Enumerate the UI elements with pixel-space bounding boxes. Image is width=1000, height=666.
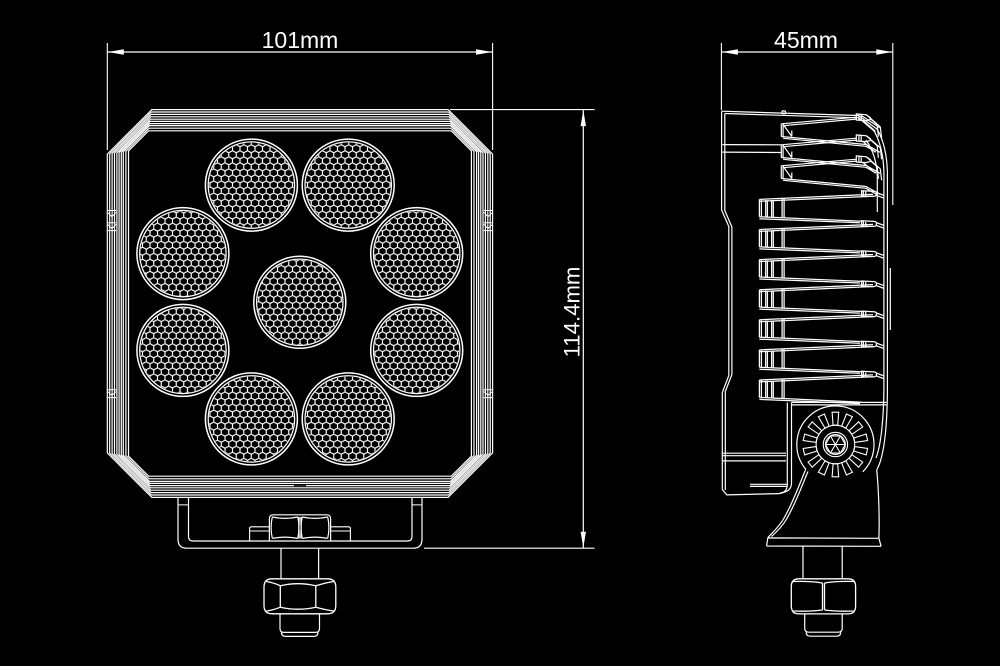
svg-text:114.4mm: 114.4mm — [559, 267, 584, 358]
svg-text:45mm: 45mm — [774, 27, 838, 53]
svg-text:101mm: 101mm — [262, 27, 339, 53]
